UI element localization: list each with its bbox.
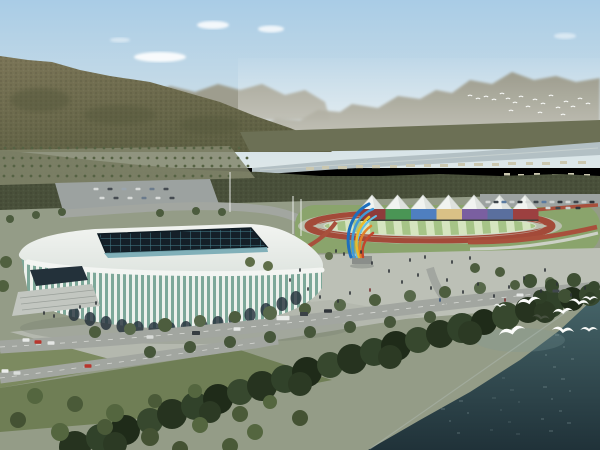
car bbox=[526, 201, 531, 204]
orchard-tree bbox=[201, 175, 204, 178]
car bbox=[94, 188, 99, 191]
car bbox=[556, 207, 561, 210]
orchard-tree bbox=[157, 165, 160, 168]
car bbox=[576, 207, 581, 210]
orchard-tree bbox=[93, 157, 96, 160]
tree bbox=[27, 388, 43, 404]
tree bbox=[439, 286, 451, 298]
orchard-tree bbox=[129, 157, 132, 160]
orchard-tree bbox=[3, 157, 6, 160]
orchard-tree bbox=[75, 157, 78, 160]
orchard-tree bbox=[156, 175, 159, 178]
orchard-tree bbox=[210, 175, 213, 178]
tree bbox=[229, 311, 241, 323]
person-figure bbox=[508, 285, 510, 289]
tree bbox=[474, 282, 486, 294]
person-figure bbox=[95, 301, 97, 305]
orchard-tree bbox=[192, 157, 195, 160]
person-figure bbox=[319, 295, 321, 299]
tree bbox=[264, 331, 276, 343]
scene-svg bbox=[0, 0, 600, 450]
orchard-tree bbox=[201, 157, 204, 160]
wall-segment bbox=[462, 209, 488, 220]
tree bbox=[378, 345, 402, 369]
orchard-tree bbox=[4, 147, 7, 150]
orchard-tree bbox=[102, 175, 105, 178]
orchard-tree bbox=[40, 165, 43, 168]
orchard-tree bbox=[175, 165, 178, 168]
tree bbox=[192, 207, 200, 215]
tree bbox=[67, 396, 83, 412]
orchard-tree bbox=[130, 147, 133, 150]
orchard-tree bbox=[4, 165, 7, 168]
car bbox=[128, 197, 133, 200]
orchard-tree bbox=[57, 157, 60, 160]
car bbox=[108, 188, 113, 191]
orchard-tree bbox=[247, 165, 250, 168]
orchard-tree bbox=[175, 147, 178, 150]
car bbox=[234, 327, 241, 331]
orchard-tree bbox=[174, 157, 177, 160]
orchard-tree bbox=[148, 147, 151, 150]
cloud bbox=[197, 21, 229, 29]
mountain-shade-patch bbox=[180, 116, 240, 134]
car bbox=[114, 197, 119, 200]
orchard-tree bbox=[39, 175, 42, 178]
orchard-tree bbox=[102, 157, 105, 160]
person-figure bbox=[53, 314, 55, 318]
person-figure bbox=[544, 268, 546, 272]
orchard-tree bbox=[229, 165, 232, 168]
tree bbox=[458, 321, 482, 345]
orchard-tree bbox=[183, 157, 186, 160]
orchard-tree bbox=[165, 175, 168, 178]
orchard-tree bbox=[174, 175, 177, 178]
car bbox=[574, 201, 579, 204]
tree bbox=[89, 326, 101, 338]
tree bbox=[510, 280, 520, 290]
orchard-tree bbox=[66, 175, 69, 178]
person-figure bbox=[504, 298, 506, 302]
orchard-tree bbox=[238, 147, 241, 150]
riverside-building bbox=[356, 165, 363, 168]
orchard-tree bbox=[138, 175, 141, 178]
riverside-building bbox=[560, 161, 567, 164]
tree bbox=[188, 384, 202, 398]
arcade-arch bbox=[245, 308, 256, 322]
tree bbox=[325, 252, 333, 260]
wall-segment bbox=[437, 209, 463, 220]
car bbox=[502, 201, 507, 204]
orchard-tree bbox=[85, 147, 88, 150]
orchard-tree bbox=[183, 175, 186, 178]
riverside-building bbox=[526, 162, 533, 165]
tree bbox=[247, 424, 263, 440]
car bbox=[100, 197, 105, 200]
car bbox=[510, 201, 515, 204]
riverside-building bbox=[306, 167, 314, 170]
orchard-tree bbox=[66, 157, 69, 160]
riverside-building bbox=[578, 161, 586, 164]
orchard-tree bbox=[67, 165, 70, 168]
person-figure bbox=[493, 294, 495, 298]
riverside-building bbox=[390, 165, 397, 168]
orchard-tree bbox=[184, 165, 187, 168]
person-figure bbox=[307, 287, 309, 291]
orchard-tree bbox=[57, 175, 60, 178]
person-figure bbox=[343, 252, 345, 256]
car bbox=[122, 188, 127, 191]
orchard-tree bbox=[84, 175, 87, 178]
car bbox=[566, 207, 571, 210]
orchard-tree bbox=[49, 165, 52, 168]
person-figure bbox=[523, 276, 525, 280]
orchard-tree bbox=[40, 147, 43, 150]
orchard-tree bbox=[49, 147, 52, 150]
orchard-tree bbox=[84, 157, 87, 160]
car bbox=[136, 188, 141, 191]
riverside-building bbox=[508, 162, 516, 165]
orchard-tree bbox=[138, 157, 141, 160]
car bbox=[192, 331, 200, 335]
orchard-tree bbox=[21, 157, 24, 160]
person-figure bbox=[79, 305, 81, 309]
orchard-tree bbox=[211, 165, 214, 168]
person-figure bbox=[360, 250, 362, 254]
orchard-tree bbox=[147, 175, 150, 178]
tree bbox=[424, 311, 436, 323]
orchard-tree bbox=[157, 147, 160, 150]
riverside-building bbox=[424, 164, 431, 167]
riverside-building bbox=[372, 165, 380, 168]
tree bbox=[10, 412, 26, 428]
orchard-tree bbox=[166, 165, 169, 168]
person-figure bbox=[584, 286, 586, 290]
wall-segment bbox=[386, 209, 412, 220]
tree bbox=[263, 306, 277, 320]
orchard-tree bbox=[237, 157, 240, 160]
car bbox=[14, 371, 21, 375]
car bbox=[517, 294, 524, 297]
orchard-tree bbox=[112, 147, 115, 150]
orchard-tree bbox=[193, 147, 196, 150]
orchard-tree bbox=[13, 165, 16, 168]
aerial-rendering bbox=[0, 0, 600, 450]
person-figure bbox=[43, 311, 45, 315]
orchard-tree bbox=[166, 147, 169, 150]
tree bbox=[184, 341, 196, 353]
orchard-tree bbox=[129, 175, 132, 178]
person-figure bbox=[401, 280, 403, 284]
orchard-tree bbox=[228, 157, 231, 160]
tree bbox=[32, 211, 40, 219]
tree bbox=[292, 410, 308, 426]
orchard-tree bbox=[76, 165, 79, 168]
tree bbox=[588, 281, 600, 293]
orchard-tree bbox=[13, 147, 16, 150]
car bbox=[147, 335, 154, 339]
car bbox=[486, 201, 491, 204]
riverside-building bbox=[492, 163, 499, 166]
orchard-tree bbox=[219, 157, 222, 160]
tree bbox=[567, 273, 581, 287]
arcade-arch bbox=[85, 312, 96, 326]
orchard-tree bbox=[165, 157, 168, 160]
tree bbox=[263, 395, 277, 409]
orchard-tree bbox=[246, 157, 249, 160]
orchard-tree bbox=[93, 175, 96, 178]
wall-segment bbox=[513, 209, 539, 220]
tree bbox=[6, 215, 14, 223]
person-figure bbox=[371, 261, 373, 265]
mountain-shade-patch bbox=[84, 105, 156, 125]
car bbox=[534, 201, 539, 204]
orchard-tree bbox=[85, 165, 88, 168]
orchard-tree bbox=[202, 147, 205, 150]
tree bbox=[51, 423, 69, 441]
tree bbox=[369, 294, 381, 306]
tree bbox=[0, 256, 12, 268]
car bbox=[590, 201, 595, 204]
orchard-tree bbox=[31, 165, 34, 168]
mountain-shade-patch bbox=[10, 88, 70, 112]
car bbox=[558, 201, 563, 204]
orchard-tree bbox=[192, 175, 195, 178]
person-figure bbox=[451, 260, 453, 264]
tree bbox=[404, 290, 416, 302]
person-figure bbox=[299, 268, 301, 272]
wall-base-line bbox=[360, 220, 539, 222]
person-figure bbox=[462, 290, 464, 294]
car bbox=[546, 207, 551, 210]
person-figure bbox=[477, 282, 479, 286]
orchard-tree bbox=[147, 157, 150, 160]
car bbox=[300, 312, 308, 316]
orchard-tree bbox=[220, 165, 223, 168]
tree bbox=[194, 315, 206, 327]
person-figure bbox=[570, 293, 572, 297]
orchard-tree bbox=[103, 165, 106, 168]
cloud bbox=[258, 26, 284, 33]
orchard-tree bbox=[210, 157, 213, 160]
cloud bbox=[134, 52, 186, 62]
arcade-arch bbox=[291, 291, 302, 305]
car bbox=[150, 188, 155, 191]
riverside-building bbox=[406, 164, 415, 167]
car bbox=[566, 201, 571, 204]
orchard-tree bbox=[58, 165, 61, 168]
car bbox=[518, 201, 523, 204]
tree bbox=[523, 274, 537, 288]
person-figure bbox=[556, 282, 558, 286]
orchard-tree bbox=[48, 157, 51, 160]
arcade-arch bbox=[277, 297, 288, 311]
orchard-tree bbox=[94, 147, 97, 150]
riverside-building bbox=[504, 173, 510, 176]
orchard-tree bbox=[75, 175, 78, 178]
riverside-building bbox=[322, 166, 329, 169]
tree bbox=[141, 428, 159, 446]
car bbox=[156, 197, 161, 200]
person-figure bbox=[430, 286, 432, 290]
riverside-building bbox=[474, 163, 483, 166]
orchard-tree bbox=[121, 165, 124, 168]
tree bbox=[158, 318, 172, 332]
person-figure bbox=[349, 291, 351, 295]
tree bbox=[156, 209, 164, 217]
orchard-tree bbox=[219, 175, 222, 178]
person-figure bbox=[417, 273, 419, 277]
car bbox=[142, 197, 147, 200]
orchard-tree bbox=[22, 165, 25, 168]
orchard-tree bbox=[156, 157, 159, 160]
car bbox=[277, 316, 290, 321]
orchard-tree bbox=[202, 165, 205, 168]
orchard-tree bbox=[148, 165, 151, 168]
car bbox=[2, 369, 9, 373]
car bbox=[85, 364, 92, 368]
cloud bbox=[554, 33, 576, 39]
car bbox=[582, 201, 587, 204]
orchard-tree bbox=[238, 165, 241, 168]
tree bbox=[224, 336, 236, 348]
person-figure bbox=[388, 269, 390, 273]
tree bbox=[97, 419, 113, 435]
car bbox=[553, 290, 560, 293]
riverside-building bbox=[440, 164, 448, 167]
tree bbox=[558, 289, 572, 303]
tree bbox=[218, 208, 226, 216]
riverside-building bbox=[542, 162, 550, 165]
orchard-tree bbox=[3, 175, 6, 178]
tree bbox=[384, 316, 396, 328]
car bbox=[324, 309, 332, 313]
orchard-tree bbox=[112, 165, 115, 168]
arcade-arch bbox=[101, 316, 112, 330]
car bbox=[542, 201, 547, 204]
person-figure bbox=[439, 298, 441, 302]
tree bbox=[288, 372, 312, 396]
orchard-tree bbox=[193, 165, 196, 168]
tree bbox=[344, 321, 356, 333]
car bbox=[48, 341, 55, 345]
car bbox=[164, 188, 169, 191]
person-figure bbox=[409, 258, 411, 262]
person-figure bbox=[337, 299, 339, 303]
car bbox=[23, 338, 30, 342]
orchard-tree bbox=[111, 157, 114, 160]
orchard-tree bbox=[39, 157, 42, 160]
orchard-tree bbox=[30, 157, 33, 160]
orchard-tree bbox=[30, 175, 33, 178]
tree bbox=[304, 326, 316, 338]
tree bbox=[144, 346, 156, 358]
orchard-tree bbox=[94, 165, 97, 168]
wall-segment bbox=[488, 209, 514, 220]
car bbox=[550, 201, 555, 204]
orchard-tree bbox=[139, 165, 142, 168]
car bbox=[170, 197, 175, 200]
tree bbox=[495, 267, 505, 277]
tree bbox=[124, 323, 136, 335]
tree bbox=[232, 406, 248, 422]
orchard-tree bbox=[58, 147, 61, 150]
tree bbox=[192, 417, 208, 433]
orchard-tree bbox=[111, 175, 114, 178]
person-figure bbox=[469, 256, 471, 260]
person-figure bbox=[446, 278, 448, 282]
person-figure bbox=[335, 249, 337, 253]
colorful-stand-wall bbox=[360, 209, 539, 220]
riverside-building bbox=[458, 163, 465, 166]
cloud bbox=[110, 38, 130, 43]
orchard-tree bbox=[130, 165, 133, 168]
orchard-tree bbox=[67, 147, 70, 150]
person-figure bbox=[289, 278, 291, 282]
tree bbox=[263, 261, 273, 271]
orchard-tree bbox=[48, 175, 51, 178]
tree bbox=[148, 394, 162, 408]
orchard-tree bbox=[22, 147, 25, 150]
person-figure bbox=[540, 289, 542, 293]
person-figure bbox=[424, 255, 426, 259]
car bbox=[494, 201, 499, 204]
person-figure bbox=[369, 288, 371, 292]
orchard-tree bbox=[12, 175, 15, 178]
orchard-tree bbox=[184, 147, 187, 150]
tree bbox=[106, 404, 124, 422]
orchard-tree bbox=[139, 147, 142, 150]
sculpture-shadow bbox=[350, 264, 374, 269]
riverside-building bbox=[338, 166, 347, 169]
car bbox=[35, 340, 42, 344]
orchard-tree bbox=[120, 175, 123, 178]
orchard-tree bbox=[12, 157, 15, 160]
orchard-tree bbox=[103, 147, 106, 150]
orchard-tree bbox=[76, 147, 79, 150]
tree bbox=[534, 301, 556, 323]
orchard-tree bbox=[211, 147, 214, 150]
orchard-tree bbox=[21, 175, 24, 178]
tree bbox=[245, 257, 255, 267]
tree bbox=[470, 263, 480, 273]
orchard-tree bbox=[229, 147, 232, 150]
orchard-tree bbox=[31, 147, 34, 150]
wall-segment bbox=[411, 209, 437, 220]
tree bbox=[58, 208, 66, 216]
orchard-tree bbox=[121, 147, 124, 150]
orchard-tree bbox=[120, 157, 123, 160]
orchard-tree bbox=[220, 147, 223, 150]
tree bbox=[334, 299, 346, 311]
